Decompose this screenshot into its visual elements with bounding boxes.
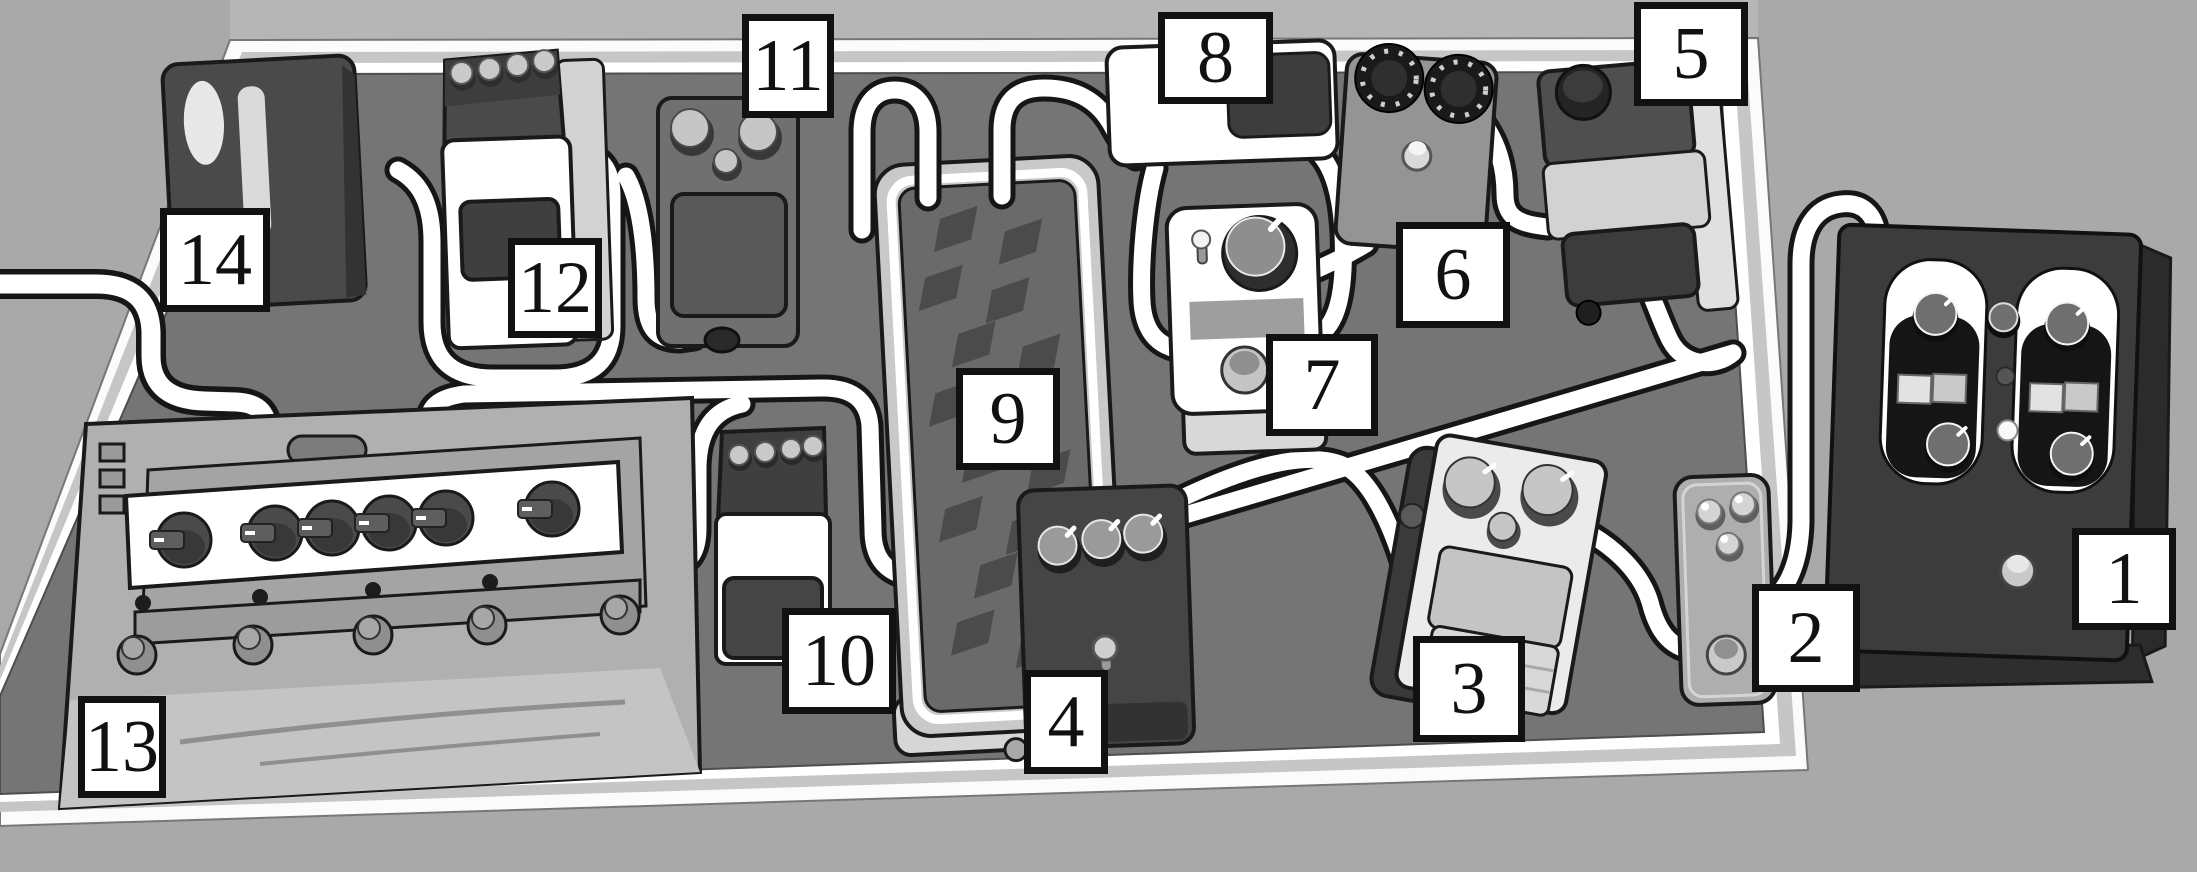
pedalboard-illustration: 1 2 3 4 5 6 7 8 9 10 11 12 13 14 xyxy=(0,0,2197,872)
callout-5: 5 xyxy=(1634,2,1748,106)
callout-11: 11 xyxy=(742,14,834,118)
pedal-5-footswitch xyxy=(1562,223,1700,306)
callout-6: 6 xyxy=(1396,222,1510,328)
callout-2: 2 xyxy=(1752,584,1860,692)
pedal-7-toggle xyxy=(1192,230,1211,249)
callout-13: 13 xyxy=(78,696,166,798)
callout-1: 1 xyxy=(2072,528,2176,630)
callout-9: 9 xyxy=(956,368,1060,470)
callout-4: 4 xyxy=(1024,670,1108,774)
callout-7: 7 xyxy=(1266,334,1378,436)
callout-14: 14 xyxy=(160,208,270,312)
callout-10: 10 xyxy=(782,608,896,714)
channel-panel-left xyxy=(1879,258,1989,485)
status-led-lit xyxy=(1997,420,2018,441)
pedal-4-toggle xyxy=(1093,636,1118,661)
pedal-11-footswitch xyxy=(672,194,786,316)
status-led-dark xyxy=(1996,367,2015,386)
pedal-11-compact xyxy=(658,98,798,352)
callout-8: 8 xyxy=(1158,12,1273,104)
channel-panel-right xyxy=(2010,267,2120,494)
wall-band xyxy=(230,0,1758,40)
callout-3: 3 xyxy=(1413,636,1525,742)
callout-12: 12 xyxy=(508,238,602,338)
